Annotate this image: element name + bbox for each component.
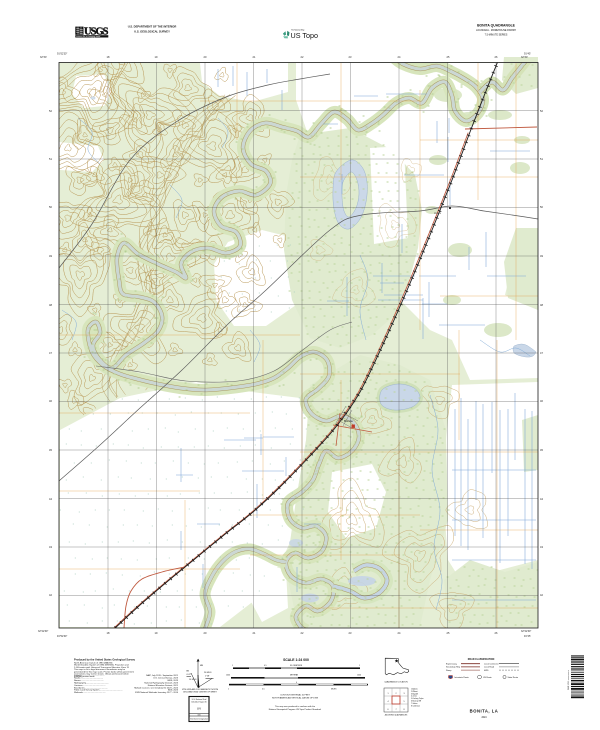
svg-text:7: 7 [395, 709, 396, 711]
svg-text:KILOMETERS: KILOMETERS [290, 665, 303, 667]
svg-text:2024: 2024 [481, 717, 487, 719]
svg-text:4WD: 4WD [484, 670, 489, 672]
svg-text:QUADRANGLE LOCATION: QUADRANGLE LOCATION [384, 681, 408, 684]
svg-text:MILES: MILES [331, 688, 337, 690]
svg-text:8: 8 [403, 709, 404, 711]
svg-text:Bonita: Bonita [344, 419, 353, 423]
svg-text:Expressway: Expressway [446, 663, 457, 665]
svg-text:Jones: Jones [434, 211, 442, 215]
svg-text:0°47': 0°47' [187, 674, 192, 676]
svg-text:US Route: US Route [483, 676, 493, 679]
svg-text:UV: UV [197, 707, 201, 711]
svg-text:1000: 1000 [357, 675, 361, 677]
svg-text:0: 0 [296, 675, 297, 677]
svg-text:METERS: METERS [290, 675, 299, 677]
svg-text:100,000-m Square ID: 100,000-m Square ID [191, 702, 207, 704]
svg-text:91°52'30": 91°52'30" [57, 635, 67, 638]
svg-text:DECLINATION AT CENTER OF SHEET: DECLINATION AT CENTER OF SHEET [183, 690, 217, 693]
svg-text:91°45': 91°45' [524, 635, 531, 638]
svg-text:4: 4 [387, 701, 388, 703]
svg-text:91°45': 91°45' [524, 53, 531, 56]
svg-text:32°30': 32°30' [521, 56, 528, 59]
svg-text:State Route: State Route [508, 676, 519, 679]
svg-text:14 MILS: 14 MILS [189, 679, 197, 681]
svg-text:0: 0 [296, 682, 297, 684]
svg-text:1°28': 1°28' [205, 676, 210, 678]
svg-text:LOUISIANA - MOREHOUSE PARISH: LOUISIANA - MOREHOUSE PARISH [476, 29, 516, 32]
svg-text:32°22'30": 32°22'30" [521, 630, 531, 633]
svg-text:BONITA QUADRANGLE: BONITA QUADRANGLE [477, 23, 516, 27]
svg-text:8 Collinston: 8 Collinston [411, 704, 420, 707]
svg-text:3: 3 [403, 693, 404, 695]
svg-text:U.S. DEPARTMENT OF THE INTERIO: U.S. DEPARTMENT OF THE INTERIOR [128, 25, 177, 29]
svg-text:32°30': 32°30' [40, 56, 47, 59]
svg-text:Local Connector: Local Connector [484, 662, 499, 665]
svg-text:1000: 1000 [226, 675, 230, 677]
svg-text:ISBN 978-1-nnnn-nnnn-n: ISBN 978-1-nnnn-nnnn-n [568, 670, 570, 690]
svg-text:US Topo: US Topo [291, 31, 318, 40]
svg-text:science for a changing world: science for a changing world [76, 35, 100, 38]
svg-text:2: 2 [395, 693, 396, 695]
svg-text:BONITA, LA: BONITA, LA [470, 709, 499, 714]
svg-text:1: 1 [359, 665, 360, 667]
svg-text:SCALE 1:24 000: SCALE 1:24 000 [283, 658, 309, 662]
svg-text:U.S. GEOLOGICAL SURVEY: U.S. GEOLOGICAL SURVEY [134, 29, 170, 33]
svg-text:26 MILS: 26 MILS [204, 672, 212, 674]
svg-text:6: 6 [387, 709, 388, 711]
svg-text:ADJOINING QUADRANGLES: ADJOINING QUADRANGLES [385, 714, 408, 717]
svg-text:0.5: 0.5 [262, 688, 265, 690]
svg-text:Secondary Hwy: Secondary Hwy [446, 667, 460, 669]
svg-text:5: 5 [403, 701, 404, 703]
svg-text:This map was produced to confo: This map was produced to conform with th… [275, 705, 316, 708]
svg-text:ROAD CLASSIFICATION: ROAD CLASSIFICATION [468, 658, 495, 661]
svg-text:0.5: 0.5 [264, 665, 267, 667]
svg-text:Grid Zone Designation: Grid Zone Designation [190, 718, 208, 721]
svg-text:Interstate Route: Interstate Route [455, 676, 470, 679]
svg-text:Produced by the United States: Produced by the United States Geological… [74, 658, 136, 662]
svg-text:1: 1 [387, 693, 388, 695]
svg-text:Wetlands......................: Wetlands................................… [74, 691, 106, 694]
svg-text:MN: MN [200, 665, 204, 667]
svg-text:91°52'30": 91°52'30" [57, 53, 67, 56]
svg-text:National Geospatial Program US: National Geospatial Program US Topo Prod… [269, 708, 322, 711]
svg-text:1: 1 [228, 688, 229, 690]
svg-text:1: 1 [232, 665, 233, 667]
svg-text:FWS National Wetlands Inventor: FWS National Wetlands Inventory 1977 - 2… [135, 691, 179, 694]
svg-text:NORTH AMERICAN VERTICAL DATUM: NORTH AMERICAN VERTICAL DATUM OF 1988 [272, 696, 319, 699]
svg-text:Ramp: Ramp [446, 670, 452, 672]
svg-text:Local Road: Local Road [484, 667, 494, 669]
svg-text:7.5-MINUTE SERIES: 7.5-MINUTE SERIES [485, 34, 508, 37]
svg-text:CONTOUR INTERVAL 10 FEET: CONTOUR INTERVAL 10 FEET [280, 694, 310, 697]
svg-text:32°22'30": 32°22'30" [38, 630, 48, 633]
svg-text:U.S. National Grid: U.S. National Grid [192, 698, 206, 701]
